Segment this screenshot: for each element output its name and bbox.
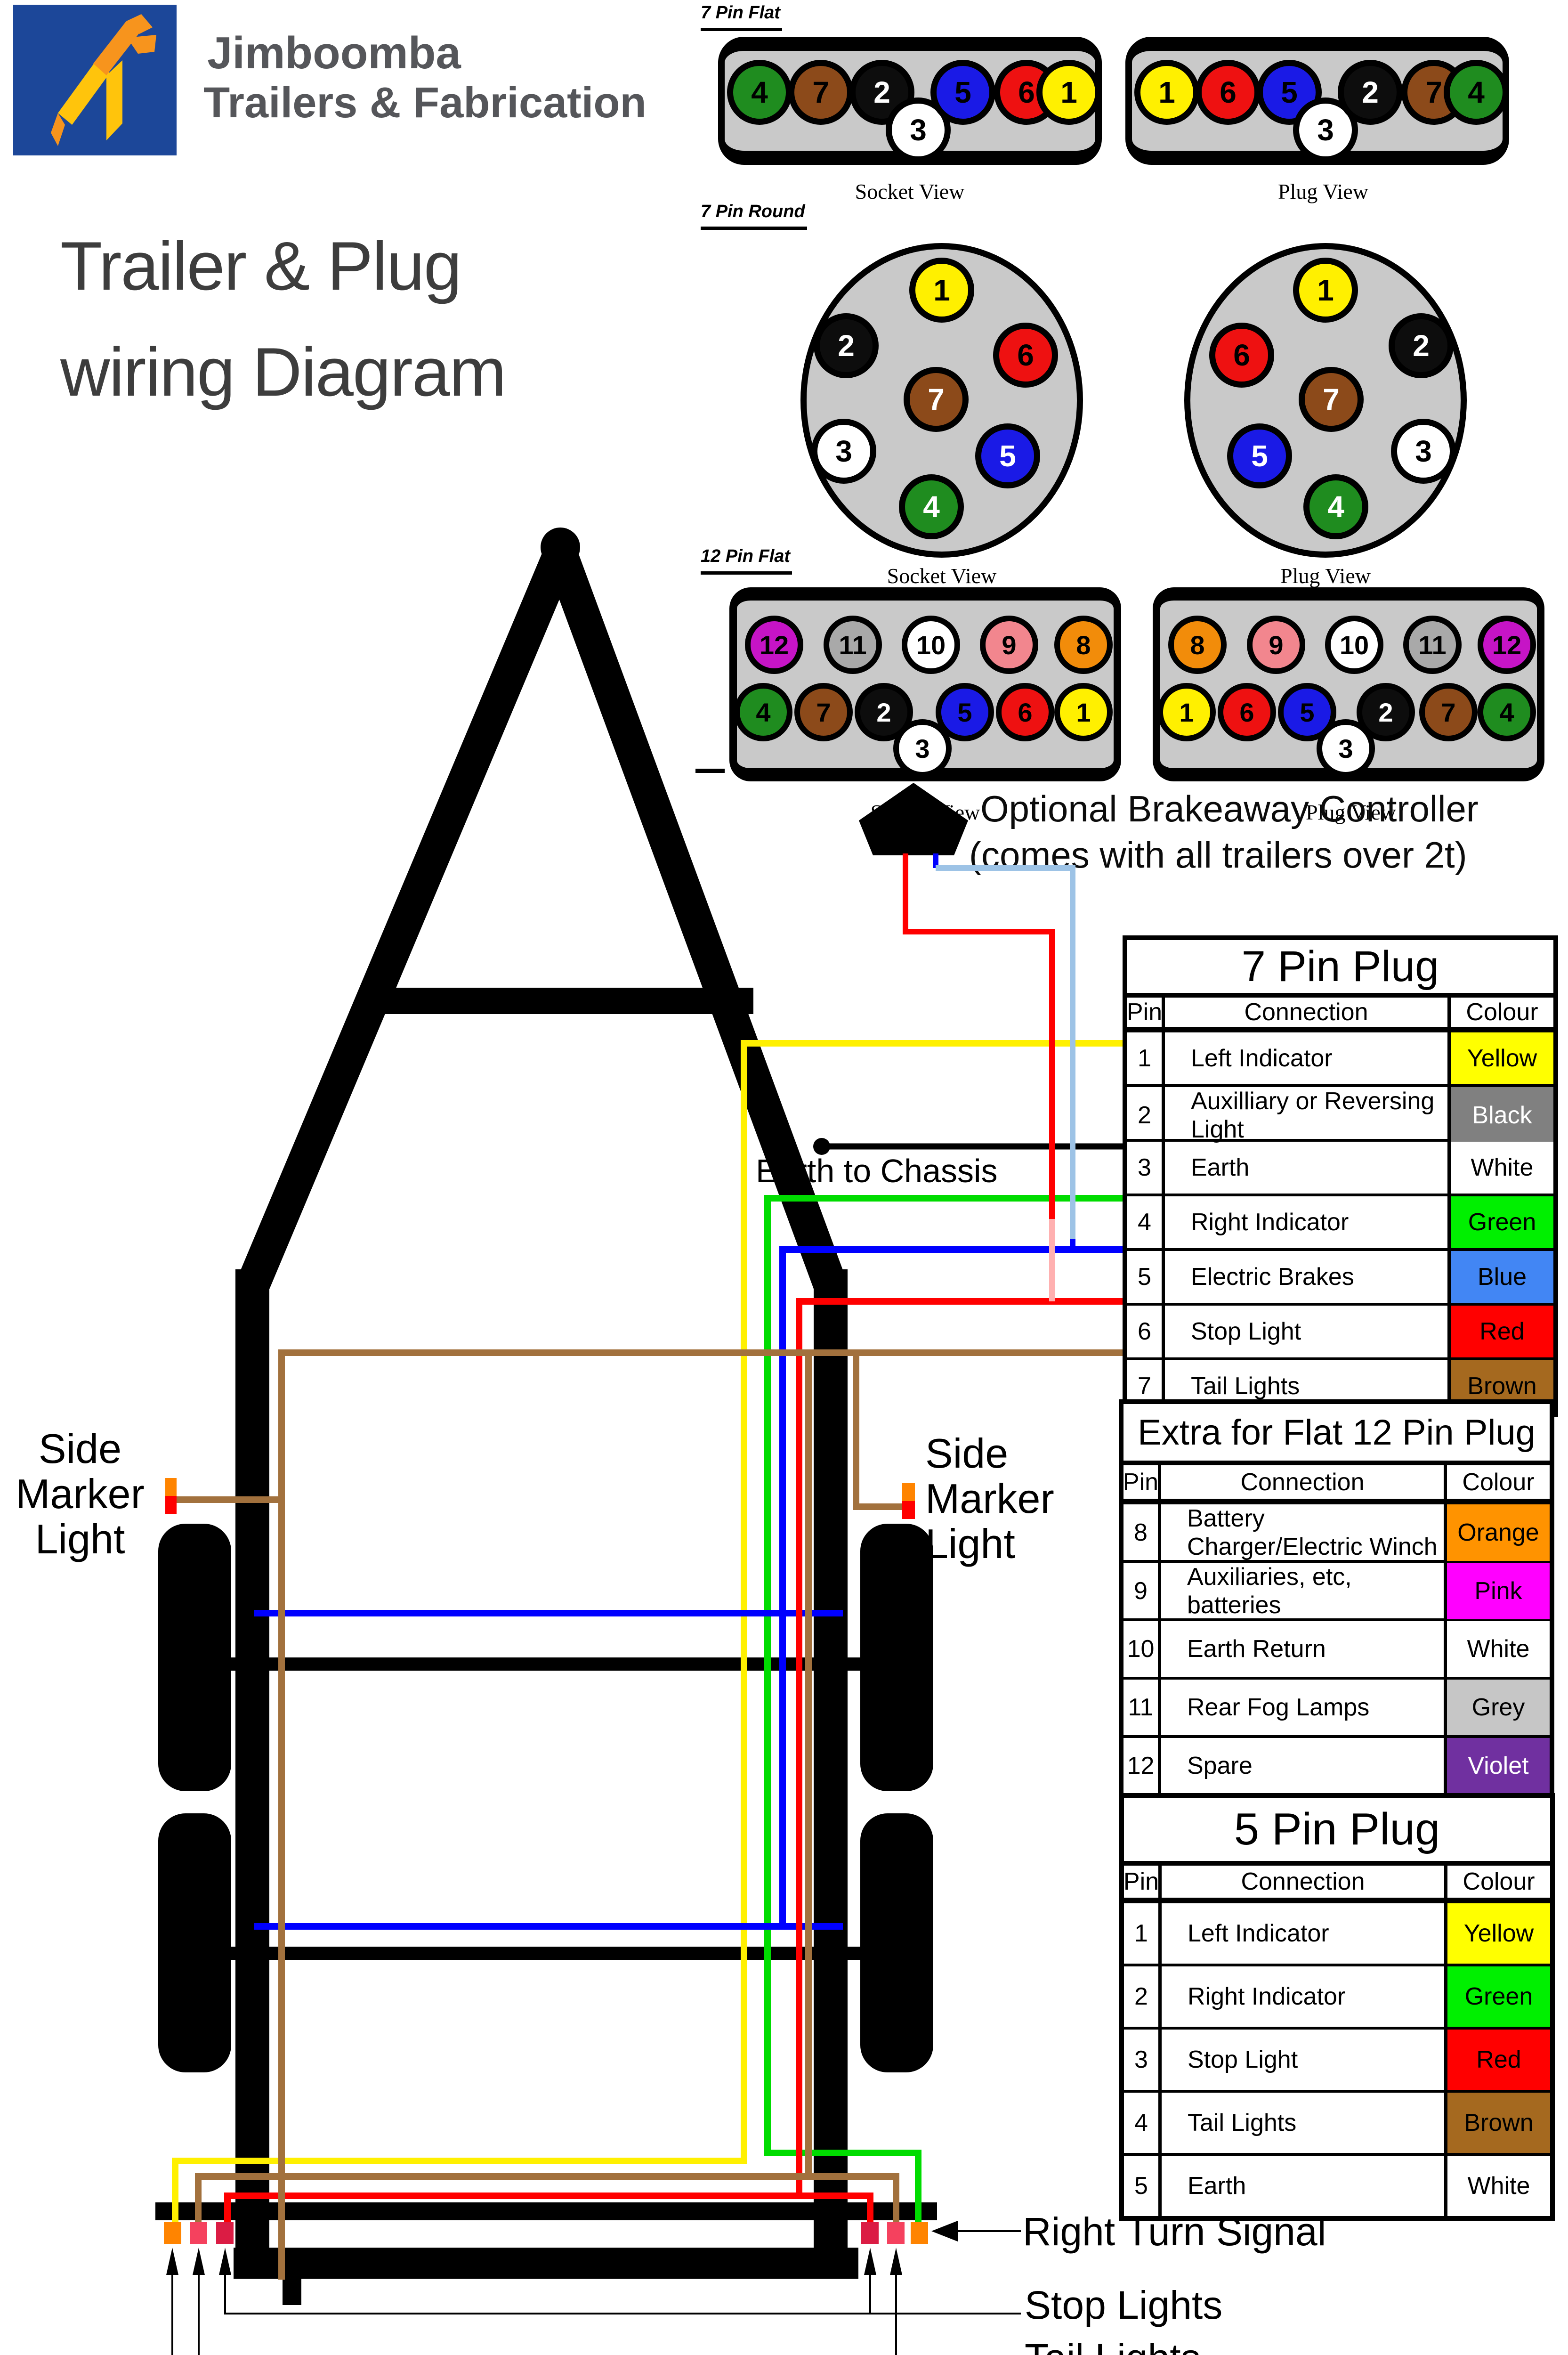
side-marker-label-right: SideMarkerLight <box>925 1431 1076 1567</box>
table-body: 1Left IndicatorYellow2Auxilliary or Reve… <box>1127 1032 1553 1412</box>
side-marker-left-red <box>165 1496 177 1514</box>
table-title: Extra for Flat 12 Pin Plug <box>1123 1404 1550 1465</box>
arrow-up-left-stop <box>219 2248 231 2275</box>
connection-cell: Battery Charger/Electric Winch <box>1161 1504 1447 1561</box>
table-row: 5EarthWhite <box>1124 2156 1550 2216</box>
label-line: Side <box>925 1431 1076 1476</box>
axle-bar-2 <box>198 1947 899 1960</box>
wheel-left-rear <box>158 1813 231 2072</box>
pin-number-cell: 5 <box>1127 1251 1165 1303</box>
connection-cell: Auxiliaries, etc, batteries <box>1161 1563 1447 1619</box>
rear-light-left-indicator <box>164 2222 181 2244</box>
colour-cell: White <box>1451 1142 1553 1194</box>
body-right-wall <box>814 1269 848 2264</box>
table-row: 2Right IndicatorGreen <box>1124 1966 1550 2030</box>
pin-number-cell: 4 <box>1124 2093 1162 2153</box>
label-line: Marker <box>5 1471 155 1517</box>
colour-cell: Brown <box>1447 2093 1550 2153</box>
connection-cell: Auxilliary or Reversing Light <box>1165 1087 1451 1144</box>
connection-cell: Left Indicator <box>1162 1903 1447 1964</box>
arrow-up-right-stop <box>864 2248 876 2275</box>
trailer-structure <box>155 528 968 2305</box>
table-header-row: PinConnectionColour <box>1127 998 1553 1032</box>
column-header: Colour <box>1447 1866 1550 1898</box>
colour-cell: Blue <box>1451 1251 1553 1303</box>
column-header: Pin <box>1124 1866 1162 1898</box>
rear-light-right-tail <box>887 2222 905 2244</box>
side-marker-right-red <box>902 1501 915 1519</box>
colour-cell: Yellow <box>1447 1903 1550 1964</box>
column-header: Connection <box>1162 1866 1447 1898</box>
table-row: 1Left IndicatorYellow <box>1127 1032 1553 1087</box>
table-row: 2Auxilliary or Reversing LightBlack <box>1127 1087 1553 1142</box>
wire-marker-right-branch <box>856 1353 902 1507</box>
colour-cell: Green <box>1451 1196 1553 1248</box>
table-row: 9Auxiliaries, etc, batteriesPink <box>1123 1563 1550 1621</box>
column-header: Pin <box>1123 1465 1161 1499</box>
pin-number-cell: 8 <box>1123 1504 1161 1561</box>
table-row: 3EarthWhite <box>1127 1142 1553 1196</box>
right-turn-signal-label: Right Turn Signal <box>1023 2209 1326 2255</box>
arrow-up-left-tail <box>193 2248 205 2275</box>
pin-number-cell: 2 <box>1127 1087 1165 1144</box>
label-line: Marker <box>925 1476 1076 1521</box>
arrow-up-left-indicator <box>166 2248 178 2275</box>
table-row: 10Earth ReturnWhite <box>1123 1621 1550 1680</box>
table-extra-12-pin-plug: Extra for Flat 12 Pin Plug PinConnection… <box>1119 1399 1554 1798</box>
colour-cell: Red <box>1447 2030 1550 2090</box>
pin-number-cell: 3 <box>1124 2030 1162 2090</box>
pin-number-cell: 2 <box>1124 1966 1162 2027</box>
rear-frame-bar <box>234 2248 858 2279</box>
side-marker-label-left: SideMarkerLight <box>5 1426 155 1562</box>
table-row: 11Rear Fog LampsGrey <box>1123 1680 1550 1738</box>
arrow-left-right-turn <box>931 2221 958 2241</box>
pin-number-cell: 11 <box>1123 1680 1161 1735</box>
rear-light-left-stop <box>216 2222 234 2244</box>
earth-to-chassis-label: Earth to Chassis <box>756 1152 998 1190</box>
label-line: Light <box>925 1521 1076 1567</box>
wheel-right-rear <box>860 1813 933 2072</box>
colour-cell: Green <box>1447 1966 1550 2027</box>
arrow-up-right-tail <box>890 2248 902 2275</box>
table-body: 8Battery Charger/Electric WinchOrange9Au… <box>1123 1504 1550 1794</box>
pin-number-cell: 4 <box>1127 1196 1165 1248</box>
connection-cell: Stop Light <box>1165 1306 1451 1357</box>
connection-cell: Stop Light <box>1162 2030 1447 2090</box>
page-canvas: Jimboomba Trailers & Fabrication Trailer… <box>0 0 1568 2355</box>
side-marker-left-orange <box>165 1478 177 1496</box>
table-header-row: PinConnectionColour <box>1123 1465 1550 1504</box>
table-7-pin-plug: 7 Pin Plug PinConnectionColour 1Left Ind… <box>1123 935 1558 1417</box>
connection-cell: Earth <box>1165 1142 1451 1194</box>
colour-cell: Violet <box>1447 1738 1550 1794</box>
colour-cell: Grey <box>1447 1680 1550 1735</box>
pin-number-cell: 6 <box>1127 1306 1165 1357</box>
column-header: Pin <box>1127 998 1165 1027</box>
table-row: 6Stop LightRed <box>1127 1306 1553 1360</box>
wheel-right-front <box>860 1524 933 1791</box>
pin-number-cell: 3 <box>1127 1142 1165 1194</box>
column-header: Colour <box>1451 998 1553 1027</box>
colour-cell: White <box>1447 1621 1550 1677</box>
pin-number-cell: 1 <box>1124 1903 1162 1964</box>
table-row: 12SpareViolet <box>1123 1738 1550 1794</box>
pin-number-cell: 9 <box>1123 1563 1161 1619</box>
side-marker-right-orange <box>902 1483 915 1501</box>
table-row: 8Battery Charger/Electric WinchOrange <box>1123 1504 1550 1563</box>
tail-lights-label: Tail Lights <box>1025 2335 1201 2355</box>
pin-number-cell: 1 <box>1127 1032 1165 1084</box>
connection-cell: Earth Return <box>1161 1621 1447 1677</box>
table-row: 4Right IndicatorGreen <box>1127 1196 1553 1251</box>
colour-cell: Yellow <box>1451 1032 1553 1084</box>
colour-cell: Black <box>1451 1087 1553 1144</box>
table-row: 3Stop LightRed <box>1124 2030 1550 2093</box>
wire-left-indicator <box>175 1043 1128 2228</box>
table-row: 5Electric BrakesBlue <box>1127 1251 1553 1306</box>
label-line: Light <box>5 1517 155 1562</box>
colour-cell: White <box>1447 2156 1550 2216</box>
wheel-left-front <box>158 1524 231 1791</box>
connection-cell: Spare <box>1161 1738 1447 1794</box>
table-body: 1Left IndicatorYellow2Right IndicatorGre… <box>1124 1903 1550 2216</box>
label-line: Side <box>5 1426 155 1471</box>
rear-light-left-tail <box>190 2222 207 2244</box>
colour-cell: Pink <box>1447 1563 1550 1619</box>
table-title: 5 Pin Plug <box>1124 1798 1550 1866</box>
colour-cell: Orange <box>1447 1504 1550 1561</box>
earth-strap-end <box>283 2279 301 2305</box>
connection-cell: Tail Lights <box>1162 2093 1447 2153</box>
table-row: 4Tail LightsBrown <box>1124 2093 1550 2156</box>
table-row: 1Left IndicatorYellow <box>1124 1903 1550 1966</box>
table-title: 7 Pin Plug <box>1127 940 1553 998</box>
brakeaway-controller <box>859 783 968 855</box>
connection-cell: Rear Fog Lamps <box>1161 1680 1447 1735</box>
stop-lights-label: Stop Lights <box>1025 2282 1222 2328</box>
pin-number-cell: 5 <box>1124 2156 1162 2216</box>
connection-cell: Left Indicator <box>1165 1032 1451 1084</box>
table-5-pin-plug: 5 Pin Plug PinConnectionColour 1Left Ind… <box>1119 1793 1555 2221</box>
column-header: Connection <box>1165 998 1451 1027</box>
column-header: Colour <box>1447 1465 1550 1499</box>
pin-number-cell: 12 <box>1123 1738 1161 1794</box>
connection-cell: Earth <box>1162 2156 1447 2216</box>
colour-cell: Red <box>1451 1306 1553 1357</box>
rear-light-right-stop <box>861 2222 879 2244</box>
connection-cell: Right Indicator <box>1162 1966 1447 2027</box>
drawbar-left <box>252 553 560 1286</box>
connection-cell: Electric Brakes <box>1165 1251 1451 1303</box>
bumper-bar <box>155 2202 937 2220</box>
connection-cell: Right Indicator <box>1165 1196 1451 1248</box>
pin-number-cell: 10 <box>1123 1621 1161 1677</box>
column-header: Connection <box>1161 1465 1447 1499</box>
rear-light-right-indicator <box>911 2222 928 2244</box>
table-header-row: PinConnectionColour <box>1124 1866 1550 1903</box>
body-left-wall <box>235 1269 269 2264</box>
axle-bar-1 <box>198 1657 899 1671</box>
